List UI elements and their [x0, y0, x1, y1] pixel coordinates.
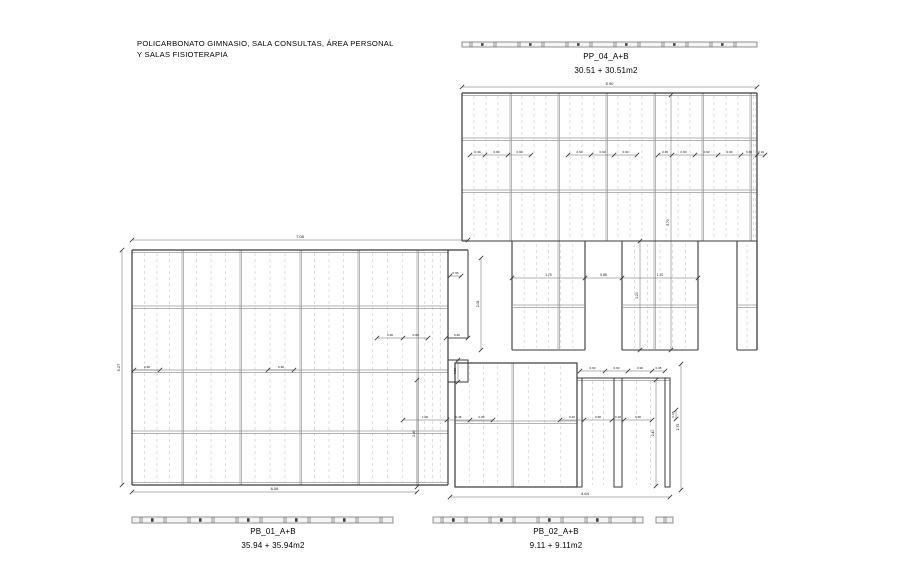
svg-text:0.90: 0.90 — [144, 365, 150, 369]
svg-text:0.90: 0.90 — [478, 415, 484, 419]
svg-text:0.30: 0.30 — [662, 150, 668, 154]
svg-text:1.70: 1.70 — [545, 273, 552, 277]
svg-text:0.90: 0.90 — [576, 150, 582, 154]
svg-text:2.40: 2.40 — [651, 430, 655, 437]
dimension: 0.85 — [453, 358, 460, 384]
plan-label-pp04: PP_04_A+B 30.51 + 30.51m2 — [456, 52, 756, 76]
svg-text:4.64: 4.64 — [581, 491, 590, 496]
plan-name-pp04: PP_04_A+B — [456, 52, 756, 62]
dimension: 2.40 — [651, 378, 658, 488]
dimension: 0.900.900.900.45 — [578, 366, 667, 373]
plan-label-pb02: PB_02_A+B 9.11 + 9.11m2 — [406, 527, 706, 551]
svg-text:0.08: 0.08 — [671, 411, 675, 417]
svg-text:5.70: 5.70 — [666, 219, 670, 226]
svg-text:2.75: 2.75 — [676, 424, 680, 431]
svg-text:0.90: 0.90 — [613, 366, 619, 370]
cad-drawing-canvas: 5.900.300.900.900.900.900.900.300.900.90… — [0, 0, 900, 570]
svg-text:0.46: 0.46 — [454, 333, 460, 337]
dimension: 0.90 — [266, 365, 296, 372]
svg-text:5.27: 5.27 — [116, 363, 121, 372]
dimension: 0.300.900.900.900.300.16 — [656, 150, 767, 157]
dimension: 2.75 — [676, 362, 683, 492]
dimension: 5.70 — [666, 93, 673, 352]
svg-text:0.16: 0.16 — [758, 150, 764, 154]
svg-text:1.06: 1.06 — [422, 415, 428, 419]
svg-text:0.30: 0.30 — [474, 150, 480, 154]
svg-text:0.90: 0.90 — [637, 366, 643, 370]
plan-area-pp04: 30.51 + 30.51m2 — [456, 66, 756, 76]
svg-text:0.90: 0.90 — [516, 150, 522, 154]
svg-text:0.90: 0.90 — [622, 150, 628, 154]
title-line-1: POLICARBONATO GIMNASIO, SALA CONSULTAS, … — [137, 38, 394, 49]
svg-text:0.90: 0.90 — [595, 415, 601, 419]
svg-text:0.90: 0.90 — [635, 415, 641, 419]
section-strip-bar — [132, 517, 673, 523]
svg-text:0.46: 0.46 — [455, 415, 461, 419]
title-line-2: Y SALAS FISIOTERAPIA — [137, 49, 394, 60]
dimension: 7.08 — [130, 234, 470, 242]
drawing-title: POLICARBONATO GIMNASIO, SALA CONSULTAS, … — [137, 38, 394, 60]
svg-text:2.20: 2.20 — [635, 292, 639, 299]
dimension: 0.08 — [671, 408, 678, 421]
dimension: 0.300.900.90 — [468, 150, 533, 157]
plan-area-pb02: 9.11 + 9.11m2 — [406, 541, 706, 551]
svg-text:0.30: 0.30 — [746, 150, 752, 154]
svg-text:0.90: 0.90 — [412, 333, 418, 337]
svg-text:0.90: 0.90 — [599, 150, 605, 154]
svg-text:0.06: 0.06 — [452, 271, 458, 275]
svg-text:0.90: 0.90 — [387, 333, 393, 337]
dimension: 5.27 — [116, 248, 124, 487]
svg-text:0.88: 0.88 — [600, 273, 607, 277]
svg-text:0.20: 0.20 — [615, 415, 621, 419]
dimension: 6.06 — [130, 486, 419, 494]
dimension: 0.900.900.90 — [566, 150, 639, 157]
dimension: 5.90 — [460, 81, 759, 89]
dimension: 2.08 — [476, 256, 483, 352]
svg-text:2.40: 2.40 — [412, 430, 416, 437]
svg-text:0.90: 0.90 — [589, 366, 595, 370]
svg-text:0.40: 0.40 — [569, 415, 575, 419]
svg-text:0.90: 0.90 — [493, 150, 499, 154]
svg-text:7.08: 7.08 — [296, 234, 305, 239]
svg-text:6.06: 6.06 — [271, 486, 280, 491]
svg-text:0.90: 0.90 — [726, 150, 732, 154]
dimension: 4.64 — [448, 491, 672, 499]
dimension: 0.06 — [448, 271, 463, 278]
plan-pb01 — [132, 250, 468, 485]
section-strip-bar — [462, 42, 757, 47]
plan-label-pb01: PB_01_A+B 35.94 + 35.94m2 — [123, 527, 423, 551]
svg-text:5.90: 5.90 — [606, 81, 615, 86]
svg-text:0.45: 0.45 — [655, 366, 661, 370]
svg-text:0.90: 0.90 — [703, 150, 709, 154]
plan-pb02 — [455, 363, 670, 487]
plan-name-pb01: PB_01_A+B — [123, 527, 423, 537]
drawing-sheet: 5.900.300.900.900.900.900.900.300.900.90… — [0, 0, 900, 570]
plan-pp04 — [462, 93, 757, 350]
svg-text:0.90: 0.90 — [680, 150, 686, 154]
svg-text:1.70: 1.70 — [657, 273, 664, 277]
svg-text:0.90: 0.90 — [278, 365, 284, 369]
dimension: 1.700.881.70 — [510, 273, 700, 280]
dimension: 2.20 — [635, 239, 642, 352]
plan-name-pb02: PB_02_A+B — [406, 527, 706, 537]
plan-area-pb01: 35.94 + 35.94m2 — [123, 541, 423, 551]
svg-text:0.85: 0.85 — [453, 368, 457, 374]
dimension: 0.90 — [132, 365, 162, 372]
svg-text:2.08: 2.08 — [476, 301, 480, 308]
